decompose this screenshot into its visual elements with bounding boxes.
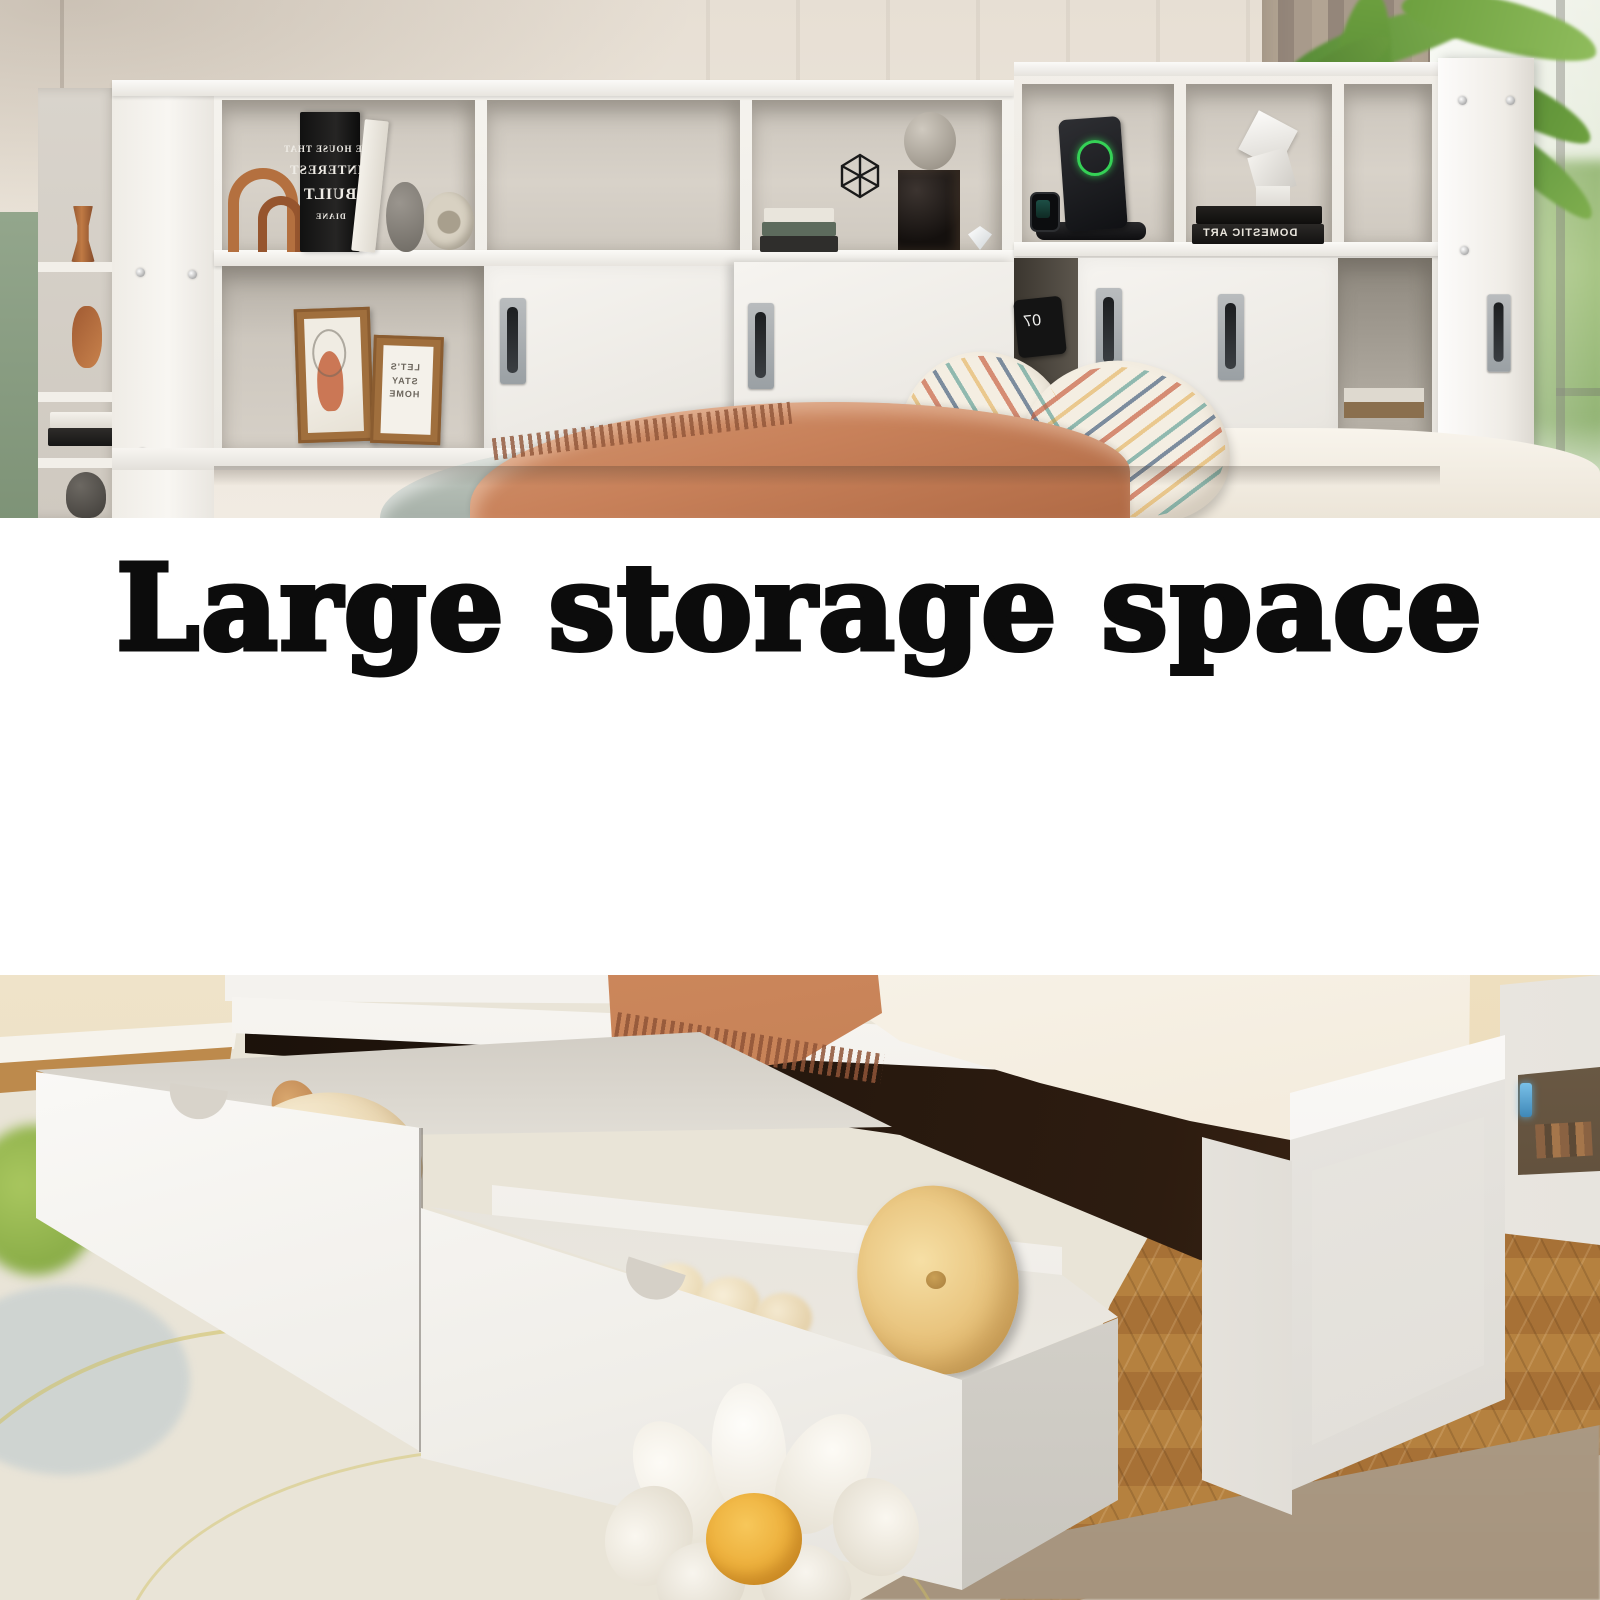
- stacked-black-books: [1196, 206, 1322, 224]
- flower-plush: [590, 1375, 930, 1600]
- small-books: [1344, 402, 1424, 418]
- stacked-books: [50, 412, 116, 428]
- black-book: THE HOUSE THAT PINTEREST BUILT DIANE: [300, 112, 360, 252]
- cubby-opening: [487, 100, 740, 250]
- clock-digits: 07: [1023, 312, 1043, 332]
- stacked-books: [764, 208, 834, 222]
- copper-arch-decor: [258, 196, 304, 252]
- side-bookcase: [38, 88, 118, 518]
- door-handle: [748, 303, 774, 389]
- side-bookcase-shelf: [38, 458, 118, 468]
- picture-frame-abstract: [294, 307, 375, 444]
- shelf-books: [1535, 1122, 1593, 1159]
- dark-vase: [66, 472, 106, 518]
- top-photo-bookcase-headboard: THE HOUSE THAT PINTEREST BUILT DIANE LET: [0, 0, 1600, 518]
- flip-clock: 07: [1013, 296, 1067, 359]
- wire-polyhedron-decor: [836, 152, 884, 200]
- headline-banner: Large storage space: [0, 518, 1600, 975]
- return-top-edge: [1014, 62, 1440, 76]
- yellow-pillow-button: [926, 1271, 946, 1289]
- door-handle: [1487, 294, 1510, 371]
- stacked-books: [760, 236, 838, 252]
- cubby-shelf: [1014, 242, 1440, 256]
- headboard-bed-shadow: [214, 466, 1440, 486]
- stone-sphere-decor: [904, 112, 956, 170]
- frame-caption: LET'S STAY HOME: [383, 360, 426, 402]
- flower-center: [706, 1493, 802, 1585]
- charging-ring-indicator: [1077, 140, 1113, 176]
- marble-cube-decor: [898, 170, 960, 250]
- stacked-books: [48, 428, 118, 446]
- copper-decor: [72, 306, 102, 368]
- smartwatch-screen: [1036, 200, 1050, 218]
- books-spine-text: DOMESTIC ART: [1202, 227, 1297, 239]
- blue-glow-object: [1520, 1083, 1532, 1117]
- side-bookcase-shelf: [38, 392, 118, 402]
- stacked-black-books: DOMESTIC ART: [1192, 224, 1324, 244]
- stacked-books: [762, 222, 836, 236]
- product-collage: THE HOUSE THAT PINTEREST BUILT DIANE LET: [0, 0, 1600, 1600]
- picture-frame-text: LET'S STAY HOME: [370, 335, 444, 445]
- gray-stone-decor: [386, 182, 424, 252]
- cubby-opening: [1344, 84, 1432, 242]
- door-handle: [1218, 294, 1244, 380]
- bottom-photo-storage-drawers: [0, 975, 1600, 1600]
- book-author-text: DIANE: [315, 212, 346, 221]
- headline-title: Large storage space: [0, 546, 1600, 670]
- door-handle: [500, 298, 526, 384]
- side-bookcase-shelf: [38, 262, 118, 272]
- book-spine-text: BUILT: [303, 186, 356, 204]
- headboard-top-edge: [112, 80, 1014, 96]
- travertine-ring-decor: [424, 192, 474, 250]
- small-books: [1344, 388, 1424, 402]
